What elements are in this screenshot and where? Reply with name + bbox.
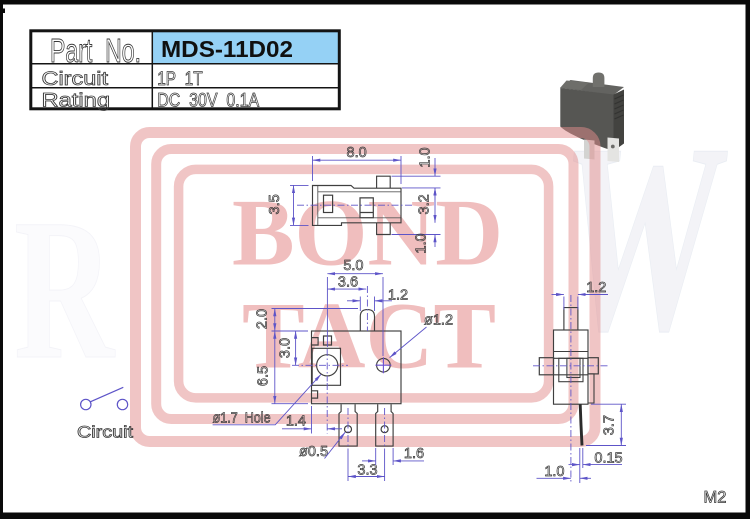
svg-text:1.6: 1.6 <box>404 446 424 462</box>
svg-text:1.0: 1.0 <box>418 147 434 167</box>
svg-text:Rating: Rating <box>42 90 111 111</box>
svg-text:3.6: 3.6 <box>338 274 358 290</box>
svg-text:M2: M2 <box>704 488 727 506</box>
svg-text:3.0: 3.0 <box>278 338 294 358</box>
svg-text:1.0: 1.0 <box>414 233 430 253</box>
svg-text:1.4: 1.4 <box>286 413 306 429</box>
svg-text:1.2: 1.2 <box>388 288 408 304</box>
svg-text:ø1.7 Hole: ø1.7 Hole <box>213 410 271 426</box>
svg-text:3.2: 3.2 <box>417 194 433 214</box>
svg-text:Part No.: Part No. <box>50 32 141 69</box>
svg-text:Circuit: Circuit <box>42 69 109 90</box>
svg-text:1P 1T: 1P 1T <box>157 69 203 90</box>
svg-text:1.0: 1.0 <box>544 464 564 480</box>
svg-text:0.15: 0.15 <box>594 450 622 466</box>
svg-text:8.0: 8.0 <box>347 145 367 161</box>
svg-text:R: R <box>14 177 115 401</box>
svg-text:ø0.5: ø0.5 <box>299 444 328 460</box>
svg-text:3.5: 3.5 <box>267 194 283 214</box>
svg-text:1.2: 1.2 <box>586 280 606 296</box>
svg-text:3.3: 3.3 <box>357 462 377 478</box>
svg-text:2.0: 2.0 <box>255 309 271 329</box>
svg-text:5.0: 5.0 <box>343 258 363 274</box>
svg-text:ø1.2: ø1.2 <box>424 313 453 329</box>
svg-text:MDS-11D02: MDS-11D02 <box>161 36 293 62</box>
svg-text:TACT: TACT <box>242 283 496 389</box>
svg-text:6.5: 6.5 <box>256 366 272 386</box>
svg-text:3.7: 3.7 <box>602 415 618 435</box>
svg-text:Circuit: Circuit <box>77 423 133 441</box>
svg-text:DC 30V 0.1A: DC 30V 0.1A <box>157 90 259 111</box>
